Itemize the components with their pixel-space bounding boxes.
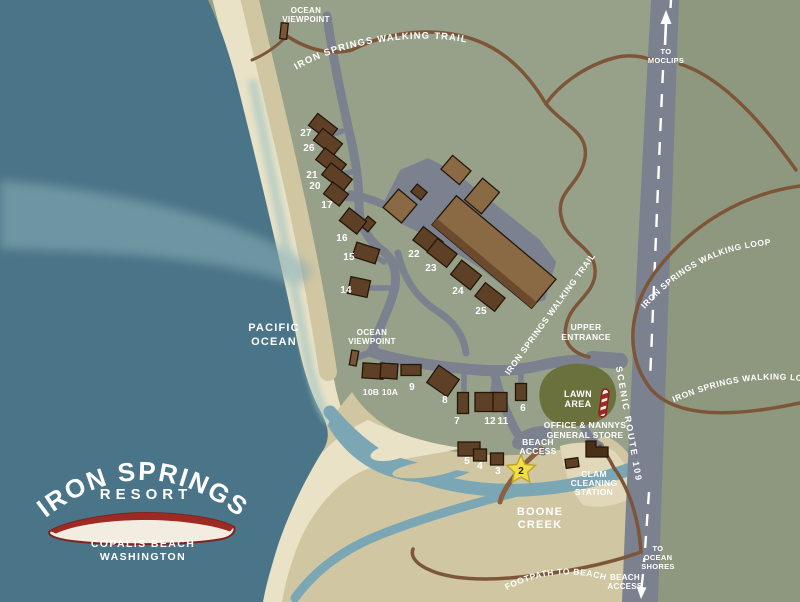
land-east-of-highway	[658, 0, 800, 602]
cabin-label-5: 5	[464, 456, 470, 467]
logo-state: WASHINGTON	[100, 551, 186, 563]
ocean-viewpoint-mid-line2: VIEWPOINT	[348, 337, 396, 346]
to-moclips-line2: MOCLIPS	[648, 56, 684, 65]
ocean-viewpoint-mid-line1: OCEAN	[357, 328, 387, 337]
office-line1: OFFICE & NANNYS	[544, 420, 626, 430]
to-ocean-shores-line2: OCEAN	[644, 553, 673, 562]
cabin-label-6: 6	[520, 403, 526, 414]
to-ocean-shores-line1: TO	[653, 544, 664, 553]
cabin-9	[401, 365, 421, 376]
to-ocean-shores-line3: SHORES	[641, 562, 674, 571]
cabin-label-12: 12	[484, 416, 496, 427]
cabin-label-8: 8	[442, 395, 448, 406]
clam-station-building	[565, 458, 579, 469]
cabin-11	[493, 393, 507, 412]
viewpoint-marker-top	[280, 23, 289, 40]
cabin-label-7: 7	[454, 416, 460, 427]
cabin-label-4: 4	[477, 461, 483, 472]
pacific-ocean-line1: PACIFIC	[248, 322, 300, 334]
ocean-viewpoint-top-line2: VIEWPOINT	[282, 15, 330, 24]
star-cabin-number: 2	[518, 466, 524, 477]
cabin-label-16: 16	[336, 233, 348, 244]
boone-creek-line1: BOONE	[517, 506, 563, 518]
cabin-label-17: 17	[321, 200, 333, 211]
upper-entrance-line1: UPPER	[571, 322, 602, 332]
map-canvas: 2 IRON SPRINGS WALKING TRAIL IRON SPRING…	[0, 0, 800, 602]
cabin-4	[474, 449, 487, 461]
centerline-dash-top	[671, 0, 672, 8]
cabin-label-3: 3	[495, 466, 501, 477]
cabin-label-14: 14	[340, 285, 352, 296]
entrance-stub	[592, 359, 620, 361]
cabin-label-15: 15	[343, 252, 355, 263]
pacific-ocean-line2: OCEAN	[251, 336, 297, 348]
logo-city: COPALIS BEACH	[91, 538, 195, 550]
beach-access-bottom-line2: ACCESS	[607, 582, 643, 591]
cabin-label-11: 11	[498, 416, 509, 427]
boone-creek-line2: CREEK	[518, 519, 563, 531]
to-moclips-line1: TO	[661, 47, 672, 56]
cabin-label-25: 25	[475, 306, 487, 317]
viewpoint-spur	[358, 352, 372, 357]
lawn-area-line2: AREA	[564, 399, 591, 409]
cabin-label-24: 24	[452, 286, 464, 297]
cabin-label-20: 20	[309, 181, 321, 192]
upper-entrance-line2: ENTRANCE	[561, 332, 611, 342]
beach-access-bottom-line1: BEACH	[610, 573, 640, 582]
cabin-3	[491, 453, 504, 465]
cabin-label-22: 22	[408, 249, 420, 260]
cabin-10a	[380, 363, 398, 379]
arrow-shaft-up	[665, 22, 666, 45]
lawn-area-line1: LAWN	[564, 389, 592, 399]
cabin-label-21: 21	[306, 170, 318, 181]
clam-line3: STATION	[575, 487, 613, 497]
cabin-label-10b: 10B	[363, 387, 379, 397]
logo-subtitle: RESORT	[100, 486, 193, 503]
cabin-label-27: 27	[300, 128, 312, 139]
cabin-label-9: 9	[409, 382, 415, 393]
cabin-6	[516, 384, 527, 401]
cabin-label-23: 23	[425, 263, 437, 274]
beach-access-mid-line2: ACCESS	[519, 446, 556, 456]
resort-map: 2 IRON SPRINGS WALKING TRAIL IRON SPRING…	[0, 0, 800, 602]
cabin-label-10a: 10A	[382, 387, 398, 397]
cabin-label-26: 26	[303, 143, 315, 154]
cabin-7	[458, 393, 469, 414]
ocean-viewpoint-top-line1: OCEAN	[291, 6, 321, 15]
office-line2: GENERAL STORE	[547, 430, 624, 440]
